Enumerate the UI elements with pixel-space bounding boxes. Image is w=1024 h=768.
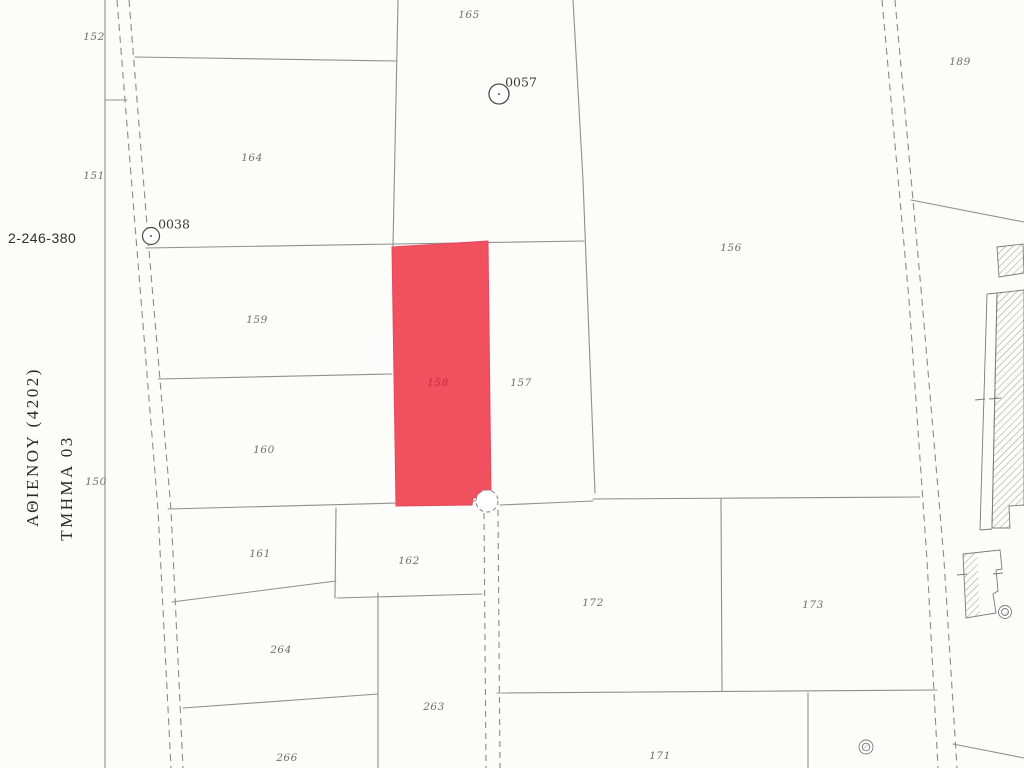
parcel-boundary-lines <box>105 0 1024 768</box>
well-icon-small <box>999 606 1012 619</box>
parcel-label-164: 164 <box>241 152 263 164</box>
parcel-label-151: 151 <box>83 170 105 182</box>
parcel-label-156: 156 <box>720 242 742 254</box>
road-left <box>117 0 183 768</box>
survey-marker-0038-label: 0038 <box>158 217 190 232</box>
survey-marker-0057-label: 0057 <box>505 75 537 90</box>
well-icon <box>859 740 873 754</box>
parcel-label-173: 173 <box>802 599 824 611</box>
hatched-building-top <box>997 244 1024 277</box>
registration-number-label: 2-246-380 <box>8 230 76 246</box>
survey-marker-0038-icon <box>143 228 160 245</box>
parcel-label-152: 152 <box>83 31 105 43</box>
parcel-label-160: 160 <box>253 444 275 456</box>
parcel-label-172: 172 <box>582 597 604 609</box>
hatched-building-small <box>957 550 1003 618</box>
road-center <box>484 510 500 768</box>
parcel-label-165: 165 <box>458 9 480 21</box>
parcel-label-162: 162 <box>398 555 420 567</box>
parcel-label-150: 150 <box>85 476 107 488</box>
road-endcap-circle <box>476 490 498 512</box>
road-right <box>882 0 957 768</box>
buildings <box>859 244 1024 754</box>
parcel-label-264: 264 <box>270 644 292 656</box>
parcel-label-157: 157 <box>510 377 532 389</box>
parcel-label-158-highlighted: 158 <box>427 377 449 389</box>
parcel-label-266: 266 <box>276 752 298 764</box>
area-title-label: ΑΘΙΕΝΟΥ (4202) <box>23 329 43 565</box>
hatched-building-strip <box>975 290 1024 530</box>
parcel-label-263: 263 <box>423 701 445 713</box>
parcel-label-161: 161 <box>249 548 271 560</box>
survey-markers <box>143 84 510 245</box>
highlighted-parcel-158[interactable] <box>392 241 491 506</box>
parcel-label-171: 171 <box>649 750 671 762</box>
cadastral-map-viewport: 2-246-380 ΑΘΙΕΝΟΥ (4202) ΤΜΗΜΑ 03 0038 0… <box>0 0 1024 768</box>
section-title-label: ΤΜΗΜΑ 03 <box>57 408 77 568</box>
parcel-label-159: 159 <box>246 314 268 326</box>
parcel-label-189: 189 <box>949 56 971 68</box>
